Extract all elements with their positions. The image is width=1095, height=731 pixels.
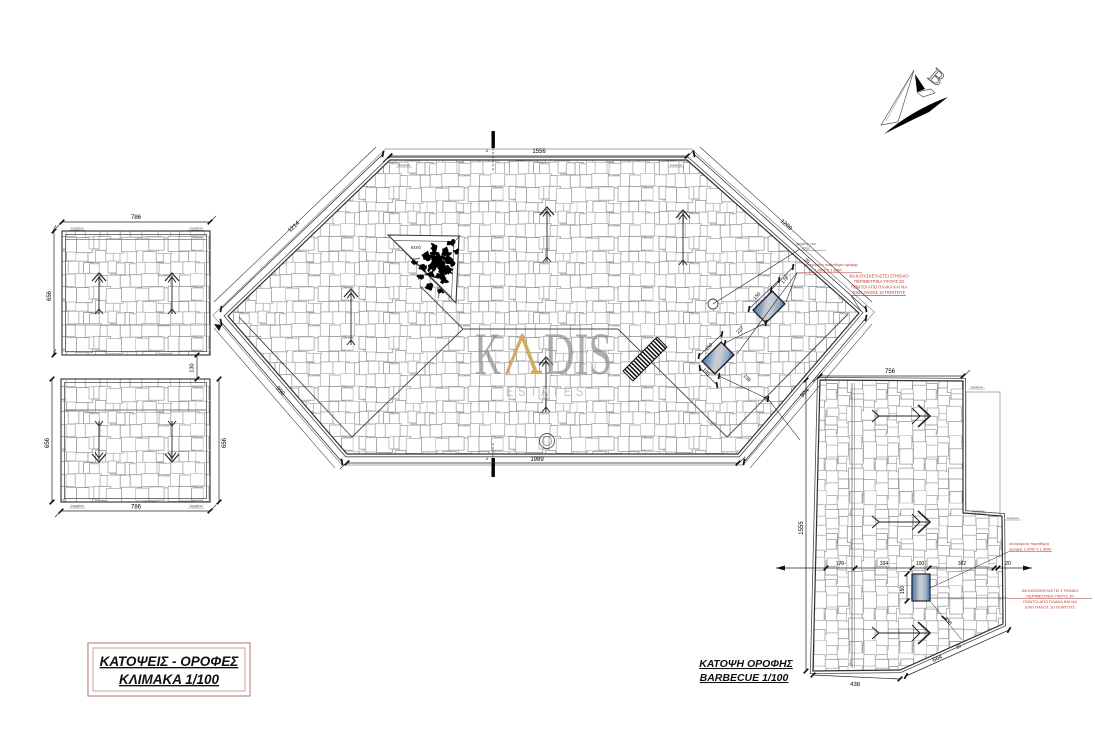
svg-text:λαμαρίνα: λαμαρίνα bbox=[189, 227, 202, 231]
svg-text:40cm: 40cm bbox=[802, 247, 810, 251]
svg-text:ΠΟΝΤΟΙ ΑΠΟ ΠΛΑΚΑ ΚΑΙ ΝΑ: ΠΟΝΤΟΙ ΑΠΟ ΠΛΑΚΑ ΚΑΙ ΝΑ bbox=[851, 285, 907, 290]
svg-text:Α: Α bbox=[486, 148, 489, 153]
svg-text:Α: Α bbox=[486, 456, 489, 461]
svg-text:150: 150 bbox=[900, 586, 906, 595]
svg-text:ΚΑΤΟΨΕΙΣ - ΟΡΟΦΕΣ: ΚΑΤΟΨΕΙΣ - ΟΡΟΦΕΣ bbox=[100, 654, 240, 669]
svg-text:λαμαρίνα: λαμαρίνα bbox=[670, 163, 683, 167]
svg-text:170: 170 bbox=[836, 561, 845, 567]
svg-text:λαμαρίνα: λαμαρίνα bbox=[70, 227, 83, 231]
svg-text:φεγγίτης γυα: φεγγίτης γυα bbox=[796, 242, 815, 246]
svg-text:ΠΟΝΤΟΙ ΑΠΟ ΠΛΑΚΑ ΚΑΙ ΝΑ: ΠΟΝΤΟΙ ΑΠΟ ΠΛΑΚΑ ΚΑΙ ΝΑ bbox=[1023, 599, 1077, 604]
svg-text:BARBECUE 1/100: BARBECUE 1/100 bbox=[700, 672, 789, 684]
svg-text:334: 334 bbox=[880, 561, 889, 567]
svg-text:λαμαρίνα: λαμαρίνα bbox=[189, 504, 202, 508]
svg-text:786: 786 bbox=[131, 505, 142, 511]
svg-text:λαμαρίνα: λαμαρίνα bbox=[1007, 516, 1020, 520]
svg-text:λαμαρίνα: λαμαρίνα bbox=[971, 385, 984, 389]
svg-text:656: 656 bbox=[222, 437, 228, 448]
svg-text:K: K bbox=[475, 321, 501, 387]
svg-text:λαμαρίνα: λαμαρίνα bbox=[972, 509, 985, 513]
svg-text:1989: 1989 bbox=[530, 457, 544, 463]
svg-text:κενό: κενό bbox=[411, 244, 421, 251]
svg-text:ανοιγόμενα παράθυρα: ανοιγόμενα παράθυρα bbox=[1009, 541, 1049, 546]
svg-text:1.00Μ Χ 1.60Μ: 1.00Μ Χ 1.60Μ bbox=[814, 268, 841, 273]
svg-text:ΝΑ ΚΑΤΑΣΚΕΥΑΣΤΕΙ ΣΤΗΘΑΙΟ: ΝΑ ΚΑΤΑΣΚΕΥΑΣΤΕΙ ΣΤΗΘΑΙΟ bbox=[849, 274, 909, 279]
svg-text:DIS: DIS bbox=[544, 321, 612, 387]
svg-text:ΚΛΙΜΑΚΑ 1/100: ΚΛΙΜΑΚΑ 1/100 bbox=[119, 672, 220, 687]
svg-text:ΕΧΕΙ ΠΑΧΟΣ 10 ΠΟΝΤΟΥΣ: ΕΧΕΙ ΠΑΧΟΣ 10 ΠΟΝΤΟΥΣ bbox=[1025, 605, 1076, 610]
svg-text:ΠΕΡΙΜΕΤΡΙΚΑ ΥΨΟΥΣ 20: ΠΕΡΙΜΕΤΡΙΚΑ ΥΨΟΥΣ 20 bbox=[854, 279, 904, 284]
svg-text:ΕΧΕΙ ΠΑΧΟΣ 10 ΠΟΝΤΟΥΣ: ΕΧΕΙ ΠΑΧΟΣ 10 ΠΟΝΤΟΥΣ bbox=[853, 290, 906, 295]
svg-text:1555: 1555 bbox=[799, 521, 805, 535]
svg-text:130: 130 bbox=[190, 363, 196, 372]
svg-text:ESTATES: ESTATES bbox=[506, 384, 588, 399]
svg-text:100: 100 bbox=[916, 561, 925, 567]
svg-text:λαμαρίνα: λαμαρίνα bbox=[70, 504, 83, 508]
svg-text:382: 382 bbox=[958, 561, 967, 567]
svg-text:οροφής 1.00Μ Χ 1.60Μ: οροφής 1.00Μ Χ 1.60Μ bbox=[1009, 547, 1051, 552]
svg-text:438: 438 bbox=[850, 682, 861, 689]
svg-text:ΝΑ ΚΑΤΑΣΚΕΥΑΣΤΕΙ ΣΤΗΘΑΙΟ: ΝΑ ΚΑΤΑΣΚΕΥΑΣΤΕΙ ΣΤΗΘΑΙΟ bbox=[1022, 588, 1079, 593]
svg-text:786: 786 bbox=[131, 215, 142, 221]
svg-text:λαμαρίνα: λαμαρίνα bbox=[398, 163, 411, 167]
svg-text:ΚΑΤΟΨΗ ΟΡΟΦΗΣ: ΚΑΤΟΨΗ ΟΡΟΦΗΣ bbox=[699, 658, 793, 670]
svg-text:656: 656 bbox=[45, 437, 51, 448]
svg-text:756: 756 bbox=[885, 369, 896, 375]
svg-text:20: 20 bbox=[1005, 561, 1011, 567]
svg-text:656: 656 bbox=[47, 290, 53, 301]
svg-text:ανοιγόμενα παράθυρα οροφής: ανοιγόμενα παράθυρα οροφής bbox=[804, 262, 858, 267]
svg-text:ΠΕΡΙΜΕΤΡΙΚΑ ΥΨΟΥΣ 20: ΠΕΡΙΜΕΤΡΙΚΑ ΥΨΟΥΣ 20 bbox=[1026, 594, 1074, 599]
svg-text:1556: 1556 bbox=[532, 149, 546, 155]
